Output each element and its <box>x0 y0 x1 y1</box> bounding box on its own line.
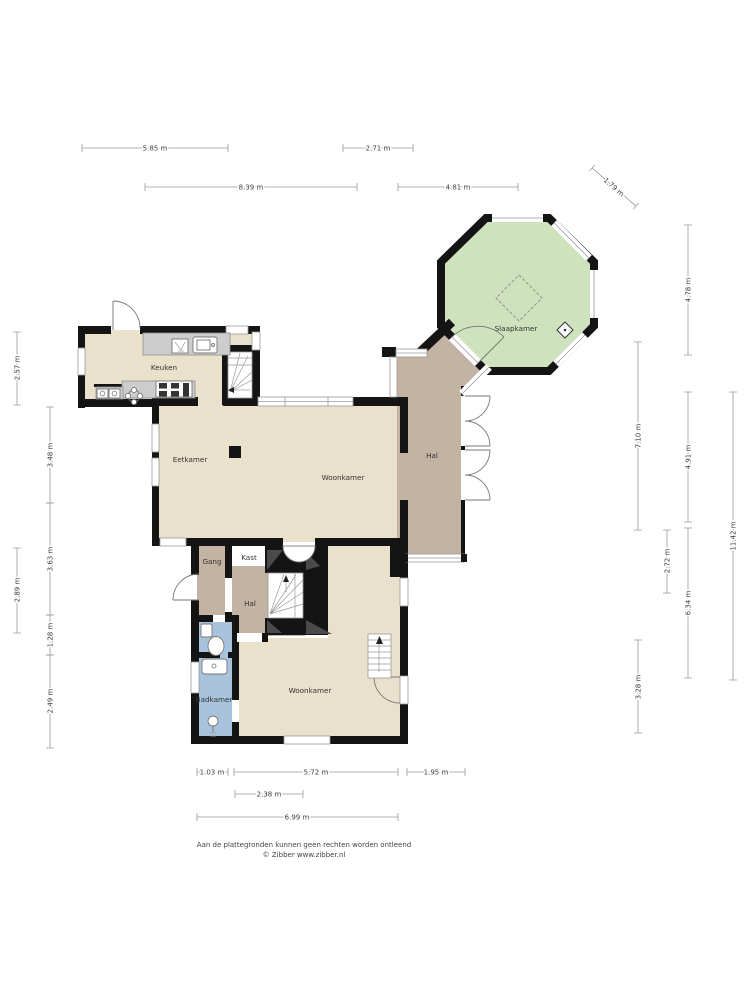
dimension-left-4: 3.63 m <box>46 503 55 615</box>
room-label-woonkamer-onder: Woonkamer <box>289 686 332 695</box>
window <box>252 332 260 350</box>
window <box>258 397 353 406</box>
dimension-top-2: 2.71 m <box>343 144 413 153</box>
dimension-right-6: 3.28 m <box>634 640 643 733</box>
room-label-badkamer: Badkamer <box>196 695 233 704</box>
dimension-left-1: 2.57 m <box>13 332 22 405</box>
dimension-bottom-2: 5.72 m <box>234 768 398 777</box>
window <box>396 349 427 357</box>
window <box>152 458 159 486</box>
opening-badkamer <box>232 700 239 722</box>
dimension-bottom-5: 6.99 m <box>197 813 398 822</box>
window <box>191 662 199 693</box>
svg-text:2.89 m: 2.89 m <box>14 578 22 603</box>
dimension-top-1: 5.85 m <box>82 144 228 153</box>
bathroom-sink-icon <box>202 659 227 674</box>
dimension-left-3: 3.48 m <box>46 407 55 503</box>
window <box>152 424 159 452</box>
room-label-kast: Kast <box>241 553 257 562</box>
room-label-gang: Gang <box>202 557 221 566</box>
window <box>160 538 186 546</box>
floorplan-drawing: Keuken Eetkamer Woonkamer Hal Slaapkamer… <box>0 0 750 1000</box>
door-keuken <box>113 301 140 330</box>
svg-text:5.85 m: 5.85 m <box>143 145 168 153</box>
dimension-bottom-1: 1.03 m <box>197 768 228 777</box>
dishwasher-icon <box>172 339 188 353</box>
door-front <box>173 574 199 600</box>
room-label-hal-boven: Hal <box>426 451 438 460</box>
opening-hal-woonkamer <box>237 633 262 642</box>
svg-text:3.63 m: 3.63 m <box>47 547 55 572</box>
opening-wc <box>213 615 225 622</box>
room-label-keuken: Keuken <box>151 363 177 372</box>
svg-text:1.95 m: 1.95 m <box>424 769 449 777</box>
footer: Aan de plattegronden kunnen geen rechten… <box>197 841 411 859</box>
dimension-left-6: 2.49 m <box>46 655 55 748</box>
dimension-top-3: 8.39 m <box>145 183 357 192</box>
footer-disclaimer: Aan de plattegronden kunnen geen rechten… <box>197 841 411 849</box>
room-label-woonkamer-boven: Woonkamer <box>322 473 365 482</box>
dimension-right-4: 2.72 m <box>663 530 672 593</box>
gang-floor <box>197 544 227 619</box>
column <box>229 446 241 458</box>
svg-text:4.78 m: 4.78 m <box>685 278 693 303</box>
dimension-diagonal: 1.79 m <box>589 165 638 209</box>
svg-text:7.10 m: 7.10 m <box>635 424 643 449</box>
svg-text:2.72 m: 2.72 m <box>664 549 672 574</box>
dimension-top-4: 4.81 m <box>398 183 518 192</box>
svg-text:1.79 m: 1.79 m <box>602 176 626 198</box>
svg-text:4.91 m: 4.91 m <box>685 445 693 470</box>
room-label-slaapkamer: Slaapkamer <box>495 324 538 333</box>
dimension-bottom-4: 2.38 m <box>235 790 303 799</box>
staircase-woonkamer <box>368 634 391 678</box>
dimension-left-5: 1.28 m <box>46 615 55 655</box>
svg-text:1.03 m: 1.03 m <box>200 769 225 777</box>
svg-text:3.48 m: 3.48 m <box>47 443 55 468</box>
opening-gang-hal <box>225 578 232 612</box>
svg-text:8.39 m: 8.39 m <box>239 184 264 192</box>
dimension-right-1: 4.78 m <box>684 225 693 355</box>
room-label-eetkamer: Eetkamer <box>173 455 208 464</box>
svg-text:2.71 m: 2.71 m <box>366 145 391 153</box>
svg-text:2.49 m: 2.49 m <box>47 689 55 714</box>
french-doors-hal <box>465 396 490 500</box>
dimension-left-2: 2.89 m <box>13 548 22 633</box>
sink-icon <box>193 337 217 353</box>
svg-text:3.28 m: 3.28 m <box>635 675 643 700</box>
floorplan-page: Keuken Eetkamer Woonkamer Hal Slaapkamer… <box>0 0 750 1000</box>
pantry-fixtures <box>96 387 123 399</box>
staircase-keuken <box>228 352 252 398</box>
dimension-right-2: 7.10 m <box>634 342 643 530</box>
dimension-bottom-3: 1.95 m <box>407 768 465 777</box>
svg-text:1.28 m: 1.28 m <box>47 623 55 648</box>
dimension-right-7: 11.42 m <box>729 392 738 680</box>
dimension-right-5: 6.34 m <box>684 528 693 678</box>
room-label-hal-onder: Hal <box>244 599 256 608</box>
footer-credit: © Zibber www.zibber.nl <box>263 851 346 859</box>
window <box>284 736 330 744</box>
svg-text:2.57 m: 2.57 m <box>14 356 22 381</box>
svg-text:6.34 m: 6.34 m <box>685 591 693 616</box>
svg-text:2.38 m: 2.38 m <box>257 791 282 799</box>
window <box>402 554 467 562</box>
staircase-hal <box>268 573 303 618</box>
svg-text:6.99 m: 6.99 m <box>285 814 310 822</box>
window <box>400 578 408 606</box>
stove-icon <box>156 381 192 397</box>
living-dining-floor <box>156 400 404 542</box>
svg-text:11.42 m: 11.42 m <box>730 521 738 550</box>
svg-text:4.81 m: 4.81 m <box>446 184 471 192</box>
window <box>390 357 397 397</box>
window <box>78 348 85 375</box>
dimension-right-3: 4.91 m <box>684 392 693 522</box>
svg-text:5.72 m: 5.72 m <box>304 769 329 777</box>
